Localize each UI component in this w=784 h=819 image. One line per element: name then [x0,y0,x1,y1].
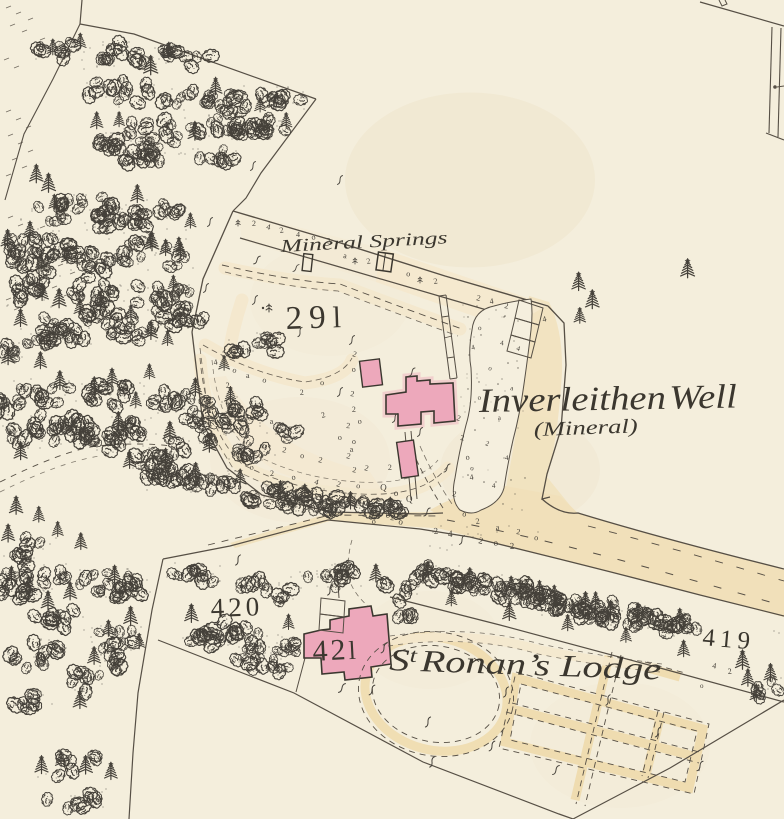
svg-text:2: 2 [299,388,304,397]
svg-text:2: 2 [388,463,392,472]
svg-text:2: 2 [352,405,356,414]
svg-text:(Mineral): (Mineral) [533,415,638,441]
svg-text:2: 2 [252,219,256,228]
svg-text:419: 419 [701,624,756,655]
svg-text:o: o [534,533,539,542]
svg-text:29l: 29l [285,299,349,337]
svg-text:o: o [478,324,482,332]
svg-text:o: o [352,437,356,446]
svg-text:o: o [372,504,377,514]
svg-text:4: 4 [448,529,453,539]
svg-text:2: 2 [346,421,351,430]
svg-text:42l: 42l [312,633,360,668]
svg-text:420: 420 [210,591,264,623]
svg-text:a: a [246,371,250,380]
svg-text:o: o [300,451,305,460]
svg-text:2: 2 [509,541,514,551]
svg-text:o: o [320,378,324,387]
svg-text:Q: Q [406,494,413,504]
svg-text:2: 2 [270,469,274,478]
svg-text:Q: Q [380,482,388,492]
svg-text:o: o [338,433,343,442]
svg-text:InverleithenWell: InverleithenWell [477,379,737,421]
svg-text:4: 4 [505,454,509,462]
svg-text:o: o [700,682,704,690]
